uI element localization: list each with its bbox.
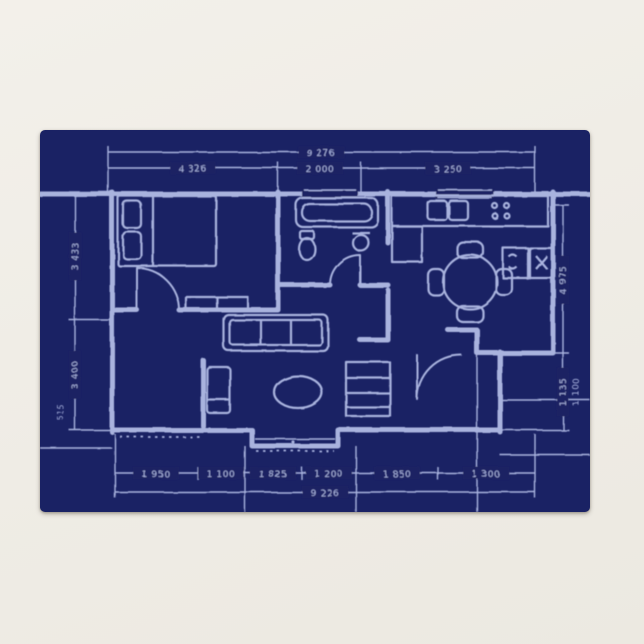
bedroom-bed [118,196,216,266]
tub-outer [296,198,378,227]
dim-right-seg2: 1 135 [559,378,569,407]
dim-bottom-seg1: 1 950 [142,470,171,480]
door-arcs [137,255,461,399]
dresser [186,297,248,309]
bathroom-sink [352,233,370,251]
dim-bottom-seg2: 1 100 [207,470,236,480]
dining-set [428,242,512,322]
toilet [299,231,315,260]
bay-window-mark [291,440,294,443]
tub-inner [302,204,372,221]
dim-top-seg2: 2 000 [306,165,335,175]
sofa-seat [230,320,322,345]
sofa [224,315,328,351]
stove-burner [493,214,498,219]
bathtub [296,198,378,227]
dim-top-total: 9 276 [307,149,336,159]
dim-bottom-seg4: 1 200 [315,470,344,480]
dim-top-seg1: 4 326 [179,165,208,175]
paper-background: 9 276 4 326 2 000 3 250 3 433 3 400 515 … [0,0,644,644]
dim-top-seg3: 3 250 [434,165,463,175]
dim-right-seg1: 4 975 [559,266,569,295]
sink-basin [353,235,369,251]
coffee-table [274,376,322,408]
pillow [123,201,141,228]
pillow [123,232,141,259]
dining-table [443,255,497,309]
stove-burner [505,204,510,209]
armchair [207,367,230,413]
counter-side [392,226,422,262]
kitchen-counter [392,196,548,262]
dim-left-seg1: 3 433 [71,242,81,271]
dim-bottom-total: 9 226 [311,489,340,499]
dim-right-seg3: 1 100 [572,378,582,407]
dim-left-small: 515 [56,403,65,420]
stove-burner [493,204,498,209]
floor-plan-svg: 9 276 4 326 2 000 3 250 3 433 3 400 515 … [40,130,590,512]
appliance-box [503,248,528,278]
kitchen-sink-bowl [449,201,468,220]
dim-left-seg2: 3 400 [71,361,81,390]
toilet-bowl [299,238,315,260]
dimension-lines [40,146,590,512]
dim-bottom-seg5: 1 850 [383,470,412,480]
dining-chair [428,269,444,295]
stove-burner [505,214,510,219]
kitchen-sink-bowl [428,201,447,220]
tv-cabinet [346,362,390,416]
blueprint-card: 9 276 4 326 2 000 3 250 3 433 3 400 515 … [40,130,590,512]
dim-bottom-seg6: 1 300 [472,470,501,480]
armchair-body [207,367,230,413]
dim-bottom-seg3: 1 825 [259,470,288,480]
counter-top [392,196,548,226]
sofa-cushion-lines [261,320,291,345]
floor-plan: 9 276 4 326 2 000 3 250 3 433 3 400 515 … [40,146,590,512]
tv-cabinet-shelves [346,378,390,407]
utility-appliances [503,248,553,278]
